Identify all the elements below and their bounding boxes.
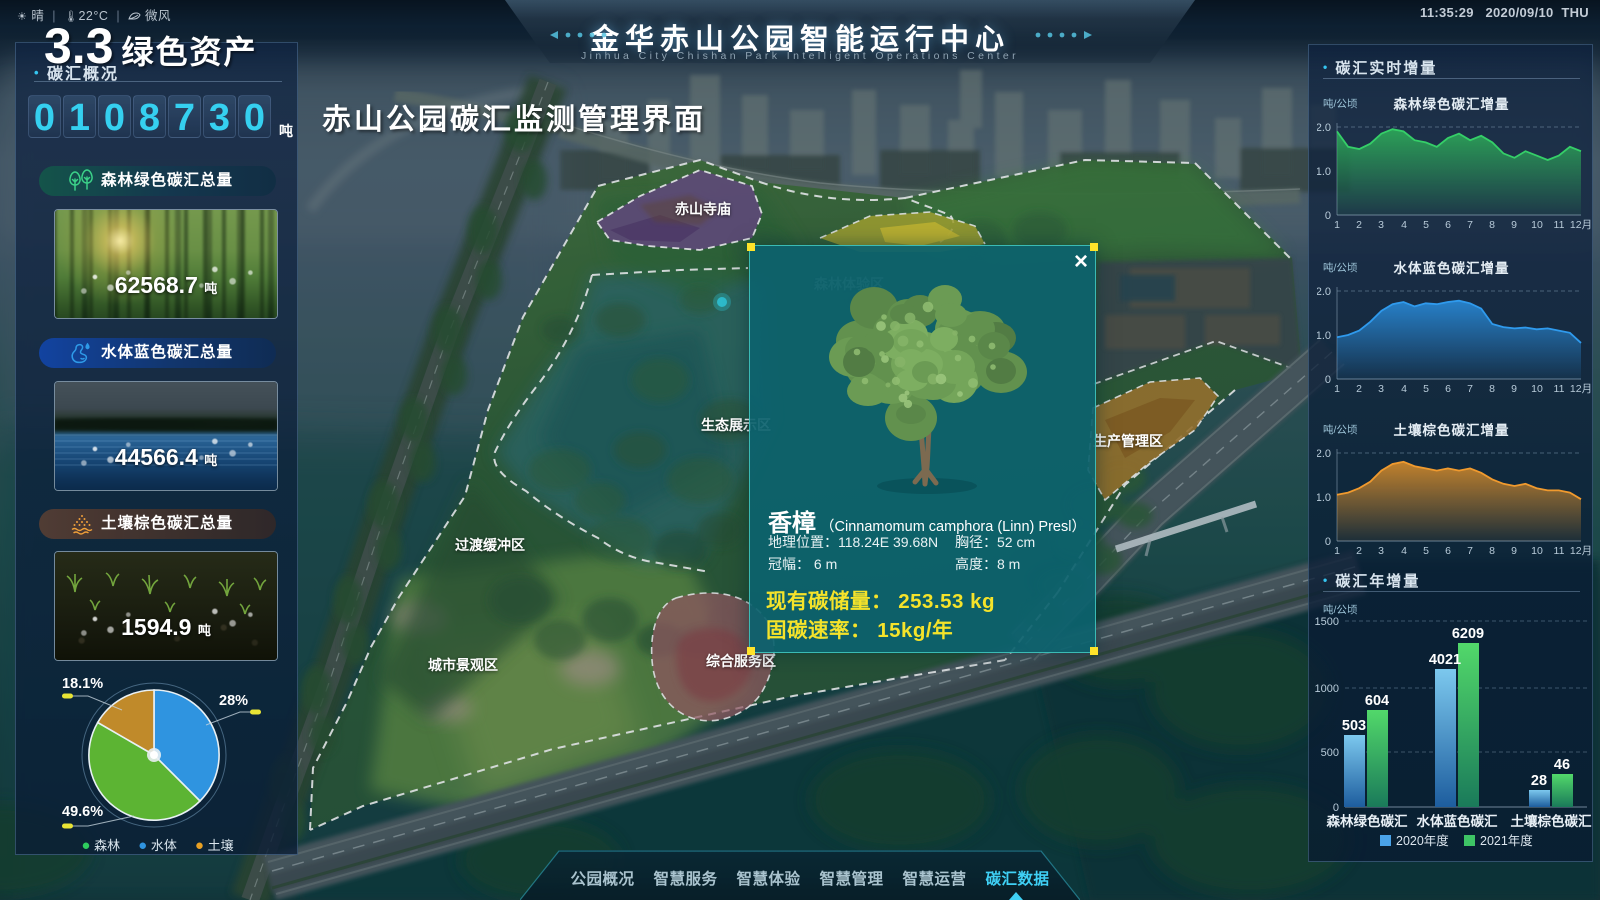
svg-text:土壤棕色碳汇: 土壤棕色碳汇 xyxy=(1511,813,1592,829)
svg-text:4021: 4021 xyxy=(1429,652,1461,668)
svg-text:18.1%: 18.1% xyxy=(62,676,103,692)
svg-text:1000: 1000 xyxy=(1315,683,1339,695)
svg-text:3: 3 xyxy=(1378,383,1384,395)
svg-text:1.0: 1.0 xyxy=(1317,166,1331,178)
svg-text:604: 604 xyxy=(1365,693,1389,709)
svg-text:2: 2 xyxy=(1356,219,1362,231)
svg-text:10: 10 xyxy=(1531,545,1543,557)
svg-text:水体蓝色碳汇: 水体蓝色碳汇 xyxy=(1417,813,1498,829)
svg-text:12月: 12月 xyxy=(1570,383,1592,395)
svg-text:8: 8 xyxy=(1489,545,1495,557)
svg-text:8: 8 xyxy=(1489,219,1495,231)
svg-text:6209: 6209 xyxy=(1452,626,1484,642)
svg-text:6: 6 xyxy=(1445,383,1451,395)
svg-text:4: 4 xyxy=(1401,219,1407,231)
svg-text:9: 9 xyxy=(1511,545,1517,557)
svg-text:0: 0 xyxy=(1325,374,1331,386)
svg-text:6: 6 xyxy=(1445,545,1451,557)
svg-text:12月: 12月 xyxy=(1570,545,1592,557)
svg-text:1: 1 xyxy=(1334,545,1340,557)
svg-text:28%: 28% xyxy=(219,693,248,709)
svg-text:8: 8 xyxy=(1489,383,1495,395)
svg-text:2: 2 xyxy=(1356,545,1362,557)
svg-text:3: 3 xyxy=(1378,219,1384,231)
svg-text:10: 10 xyxy=(1531,219,1543,231)
svg-text:5: 5 xyxy=(1423,545,1429,557)
svg-text:2: 2 xyxy=(1356,383,1362,395)
svg-text:11: 11 xyxy=(1554,383,1565,395)
svg-text:1: 1 xyxy=(1334,219,1340,231)
svg-text:1.0: 1.0 xyxy=(1317,330,1331,342)
svg-text:4: 4 xyxy=(1401,545,1407,557)
svg-text:12月: 12月 xyxy=(1570,219,1592,231)
svg-text:9: 9 xyxy=(1511,383,1517,395)
svg-text:0: 0 xyxy=(1325,536,1331,548)
svg-text:9: 9 xyxy=(1511,219,1517,231)
svg-text:6: 6 xyxy=(1445,219,1451,231)
svg-text:1: 1 xyxy=(1334,383,1340,395)
svg-text:503: 503 xyxy=(1342,718,1366,734)
svg-text:森林绿色碳汇: 森林绿色碳汇 xyxy=(1327,813,1408,829)
svg-text:1.0: 1.0 xyxy=(1317,492,1331,504)
svg-text:46: 46 xyxy=(1554,757,1570,773)
svg-text:0: 0 xyxy=(1333,802,1339,814)
svg-text:11: 11 xyxy=(1554,219,1565,231)
svg-text:2.0: 2.0 xyxy=(1317,286,1331,298)
svg-text:3: 3 xyxy=(1378,545,1384,557)
svg-text:7: 7 xyxy=(1467,383,1473,395)
svg-text:2.0: 2.0 xyxy=(1317,122,1331,134)
svg-text:5: 5 xyxy=(1423,219,1429,231)
svg-text:5: 5 xyxy=(1423,383,1429,395)
svg-text:4: 4 xyxy=(1401,383,1407,395)
svg-text:10: 10 xyxy=(1531,383,1543,395)
svg-text:1500: 1500 xyxy=(1315,616,1339,628)
svg-text:11: 11 xyxy=(1554,545,1565,557)
svg-text:28: 28 xyxy=(1531,773,1547,789)
svg-text:0: 0 xyxy=(1325,210,1331,222)
svg-text:49.6%: 49.6% xyxy=(62,804,103,820)
svg-text:500: 500 xyxy=(1321,747,1339,759)
svg-text:7: 7 xyxy=(1467,545,1473,557)
svg-text:7: 7 xyxy=(1467,219,1473,231)
svg-text:2020年度: 2020年度 xyxy=(1396,833,1449,848)
svg-text:2021年度: 2021年度 xyxy=(1480,833,1533,848)
svg-text:2.0: 2.0 xyxy=(1317,448,1331,460)
